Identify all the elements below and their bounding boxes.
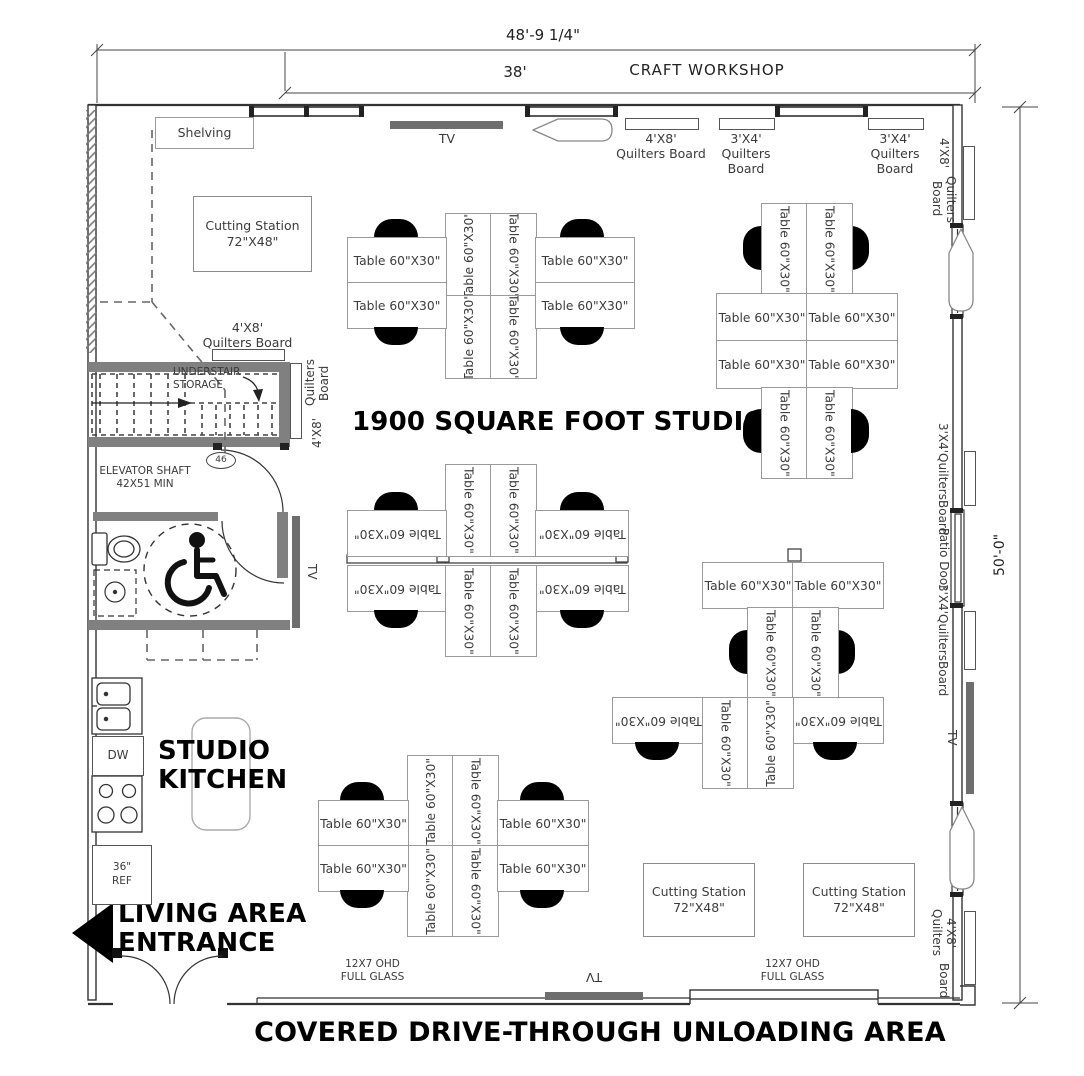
dim-overall-width: 48'-9 1/4" [478, 26, 608, 44]
ohd-door-2-label: 12X7 OHDFULL GLASS [750, 958, 835, 983]
work-table: Table 60"X30" [497, 845, 589, 892]
quilters-board-4x8-stairs-label: 4'X8'Quilters Board [200, 320, 295, 350]
work-table: Table 60"X30" [702, 562, 794, 609]
work-table: Table 60"X30" [318, 800, 409, 847]
ohd-door-1-label: 12X7 OHDFULL GLASS [330, 958, 415, 983]
work-table: Table 60"X30" [806, 387, 853, 479]
work-table: Table 60"X30" [407, 755, 454, 847]
studio-title: 1900 SQUARE FOOT STUDIO [352, 408, 766, 437]
work-table: Table 60"X30" [490, 295, 537, 379]
work-table: Table 60"X30" [792, 607, 839, 699]
wheelchair-icon [144, 524, 236, 616]
cutting-station-2: Cutting Station72"X48" [643, 863, 755, 937]
work-table: Table 60"X30" [806, 203, 853, 295]
quilters-board-3x4-top2 [868, 118, 924, 130]
work-table: Table 60"X30" [535, 565, 629, 612]
work-table: Table 60"X30" [452, 755, 499, 847]
work-table: Table 60"X30" [490, 213, 537, 297]
tv-bottom [545, 992, 643, 1000]
tv-bathroom-label: TV [302, 556, 320, 588]
shelving-unit: Shelving [155, 117, 254, 149]
unloading-title: COVERED DRIVE-THROUGH UNLOADING AREA [240, 1018, 960, 1048]
work-table: Table 60"X30" [535, 237, 635, 284]
door-number-badge: 46 [206, 452, 236, 469]
work-table: Table 60"X30" [347, 237, 447, 284]
work-table: Table 60"X30" [318, 845, 409, 892]
quilters-board-4x8-right-top [963, 146, 975, 220]
tv-top-label: TV [432, 131, 462, 146]
work-table: Table 60"X30" [445, 295, 492, 379]
floor-plan: 48'-9 1/4" 38' 50'-0" CRAFT WORKSHOP 190… [0, 0, 1084, 1076]
quilters-board-3x4-right2-label: 3'X4'QuiltersBoard [920, 603, 964, 678]
windows-top [252, 107, 866, 116]
stove [92, 776, 142, 832]
work-table: Table 60"X30" [347, 282, 447, 329]
work-table: Table 60"X30" [347, 510, 447, 557]
tv-bottom-label: TV [579, 970, 609, 985]
work-table: Table 60"X30" [535, 282, 635, 329]
quilters-board-4x8-stairs [212, 349, 285, 361]
tv-right-label: TV [942, 722, 960, 754]
toilet [92, 533, 140, 565]
dim-partial-width: 38' [490, 63, 540, 81]
work-table: Table 60"X30" [747, 697, 794, 789]
elevator-shaft-label: ELEVATOR SHAFT42X51 MIN [92, 465, 198, 490]
entrance-title: LIVING AREA ENTRANCE [118, 900, 306, 958]
dishwasher: DW [92, 736, 144, 776]
kitchen-sink [92, 678, 142, 734]
cutting-station-1: Cutting Station72"X48" [193, 196, 312, 272]
work-table: Table 60"X30" [445, 565, 492, 657]
kitchen-title: STUDIO KITCHEN [158, 737, 287, 795]
quilters-board-3x4-right1-label: 3'X4'QuiltersBoard [920, 443, 964, 515]
work-table: Table 60"X30" [445, 464, 492, 557]
tv-top [390, 121, 503, 129]
work-table: Table 60"X30" [761, 203, 808, 295]
quilters-board-4x8-right-bottom [964, 911, 976, 985]
tv-right [966, 682, 974, 794]
cutting-station-3: Cutting Station72"X48" [803, 863, 915, 937]
work-table: Table 60"X30" [490, 565, 537, 657]
quilters-board-4x8-right-bottom-label: 4'X8' QuiltersBoard [924, 903, 962, 998]
work-table: Table 60"X30" [497, 800, 589, 847]
work-table: Table 60"X30" [702, 697, 749, 789]
work-table: Table 60"X30" [761, 387, 808, 479]
work-table: Table 60"X30" [747, 607, 794, 699]
quilters-board-4x8-top [625, 118, 699, 130]
work-table: Table 60"X30" [806, 340, 898, 389]
dim-side-height: 50'-0" [988, 523, 1012, 587]
tv-bathroom [292, 516, 300, 628]
quilters-board-3x4-right2 [964, 611, 976, 670]
work-table: Table 60"X30" [407, 845, 454, 937]
quilters-board-3x4-right1 [964, 451, 976, 506]
work-table: Table 60"X30" [347, 565, 447, 612]
work-table: Table 60"X30" [716, 340, 808, 389]
work-table: Table 60"X30" [612, 697, 704, 744]
quilters-board-4x8-stairwall-label: 4'X8'Quilters Board [300, 348, 336, 448]
understair-storage-label: UNDERSTAIRSTORAGE [173, 366, 253, 391]
work-table: Table 60"X30" [535, 510, 629, 557]
work-table: Table 60"X30" [792, 697, 884, 744]
quilters-board-3x4-top1-label: 3'X4'QuiltersBoard [705, 131, 787, 176]
quilters-board-4x8-right-top-label: 4'X8'Quilters Board [924, 138, 962, 230]
quilters-board-3x4-top1 [719, 118, 775, 130]
work-table: Table 60"X30" [792, 562, 884, 609]
work-table: Table 60"X30" [716, 293, 808, 342]
wall-hatch [86, 110, 97, 353]
refrigerator: 36"REF [92, 845, 152, 905]
work-table: Table 60"X30" [445, 213, 492, 297]
work-table: Table 60"X30" [490, 464, 537, 557]
work-table: Table 60"X30" [806, 293, 898, 342]
work-table: Table 60"X30" [452, 845, 499, 937]
bathroom-sink [94, 570, 136, 616]
craft-workshop-label: CRAFT WORKSHOP [617, 61, 797, 79]
